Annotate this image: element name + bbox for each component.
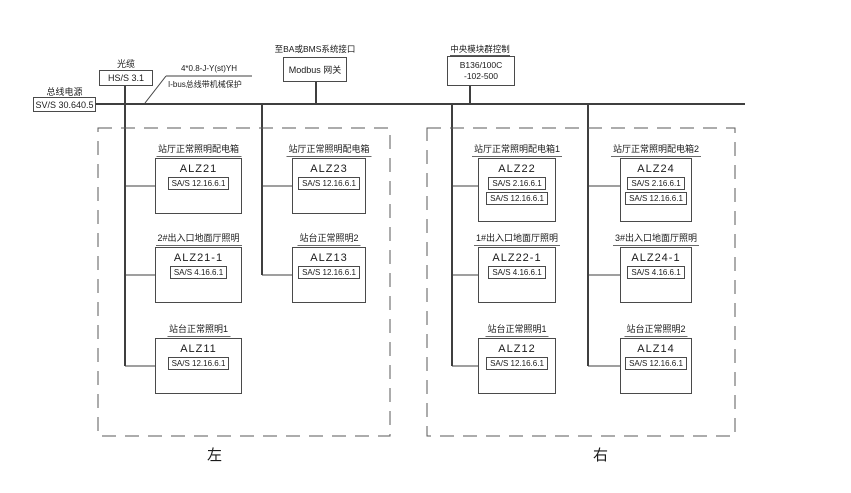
panel-alz11: ALZ11SA/S 12.16.6.1 (155, 338, 242, 394)
panel-name: ALZ24-1 (621, 252, 691, 264)
panel-alz21-1: ALZ21-1SA/S 4.16.6.1 (155, 247, 242, 303)
head-device-box: HS/S 3.1 (99, 70, 153, 86)
panel-alz21: ALZ21SA/S 12.16.6.1 (155, 158, 242, 214)
panel-alz22: ALZ22SA/S 2.16.6.1SA/S 12.16.6.1 (478, 158, 556, 222)
panel-name: ALZ13 (293, 252, 365, 264)
actuator-module: SA/S 12.16.6.1 (298, 266, 360, 279)
riser-diagram: 总线电源 SV/S 30.640.5 光缆 HS/S 3.1 4*0.8-J-Y… (0, 0, 851, 493)
panel-alz12: ALZ12SA/S 12.16.6.1 (478, 338, 556, 394)
panel-name: ALZ22-1 (479, 252, 555, 264)
panel-alz24-1: ALZ24-1SA/S 4.16.6.1 (620, 247, 692, 303)
actuator-module: SA/S 4.16.6.1 (627, 266, 684, 279)
panel-label: 2#出入口地面厅照明 (155, 231, 241, 246)
actuator-module: SA/S 12.16.6.1 (625, 192, 687, 205)
central-controller-label: 中央模块群控制 (430, 43, 530, 55)
panel-alz14: ALZ14SA/S 12.16.6.1 (620, 338, 692, 394)
actuator-module: SA/S 12.16.6.1 (168, 357, 230, 370)
panel-label: 站台正常照明1 (485, 322, 548, 337)
panel-label: 站台正常照明2 (297, 231, 360, 246)
panel-name: ALZ24 (621, 163, 691, 175)
central-controller-label-text: 中央模块群控制 (450, 44, 510, 56)
panel-label: 1#出入口地面厅照明 (474, 231, 560, 246)
cable-spec-line1: 4*0.8-J-Y(st)YH (166, 64, 252, 73)
actuator-module: SA/S 4.16.6.1 (488, 266, 545, 279)
panel-alz23: ALZ23SA/S 12.16.6.1 (292, 158, 366, 214)
panel-name: ALZ22 (479, 163, 555, 175)
cable-spec-line2: I-bus总线带机械保护 (168, 79, 242, 90)
panel-name: ALZ21-1 (156, 252, 241, 264)
actuator-module: SA/S 12.16.6.1 (486, 192, 548, 205)
panel-alz24: ALZ24SA/S 2.16.6.1SA/S 12.16.6.1 (620, 158, 692, 222)
actuator-module: SA/S 2.16.6.1 (488, 177, 545, 190)
zone-right-caption: 右 (593, 444, 608, 465)
zone-left-caption: 左 (207, 444, 222, 465)
panel-name: ALZ12 (479, 343, 555, 355)
bms-interface-label: 至BA或BMS系统接口 (255, 43, 375, 55)
panel-name: ALZ14 (621, 343, 691, 355)
panel-label: 站厅正常照明配电箱2 (611, 142, 701, 157)
panel-alz13: ALZ13SA/S 12.16.6.1 (292, 247, 366, 303)
central-controller-model-line2: -102-500 (464, 71, 498, 82)
panel-name: ALZ11 (156, 343, 241, 355)
actuator-module: SA/S 12.16.6.1 (298, 177, 360, 190)
central-controller-box: B136/100C -102-500 (447, 56, 515, 86)
actuator-module: SA/S 4.16.6.1 (170, 266, 227, 279)
panel-label: 站厅正常照明配电箱 (286, 142, 371, 157)
panel-label: 站厅正常照明配电箱1 (472, 142, 562, 157)
panel-label: 站台正常照明1 (167, 322, 230, 337)
actuator-module: SA/S 12.16.6.1 (625, 357, 687, 370)
actuator-module: SA/S 12.16.6.1 (486, 357, 548, 370)
modbus-gateway-box: Modbus 网关 (283, 57, 347, 82)
panel-label: 站厅正常照明配电箱 (156, 142, 241, 157)
panel-name: ALZ23 (293, 163, 365, 175)
panel-alz22-1: ALZ22-1SA/S 4.16.6.1 (478, 247, 556, 303)
panel-name: ALZ21 (156, 163, 241, 175)
panel-label: 站台正常照明2 (624, 322, 687, 337)
optical-cable-label: 光缆 (99, 57, 153, 70)
central-controller-model-line1: B136/100C (460, 60, 503, 71)
actuator-module: SA/S 12.16.6.1 (168, 177, 230, 190)
actuator-module: SA/S 2.16.6.1 (627, 177, 684, 190)
panel-label: 3#出入口地面厅照明 (613, 231, 699, 246)
bus-power-box: SV/S 30.640.5 (33, 97, 96, 112)
